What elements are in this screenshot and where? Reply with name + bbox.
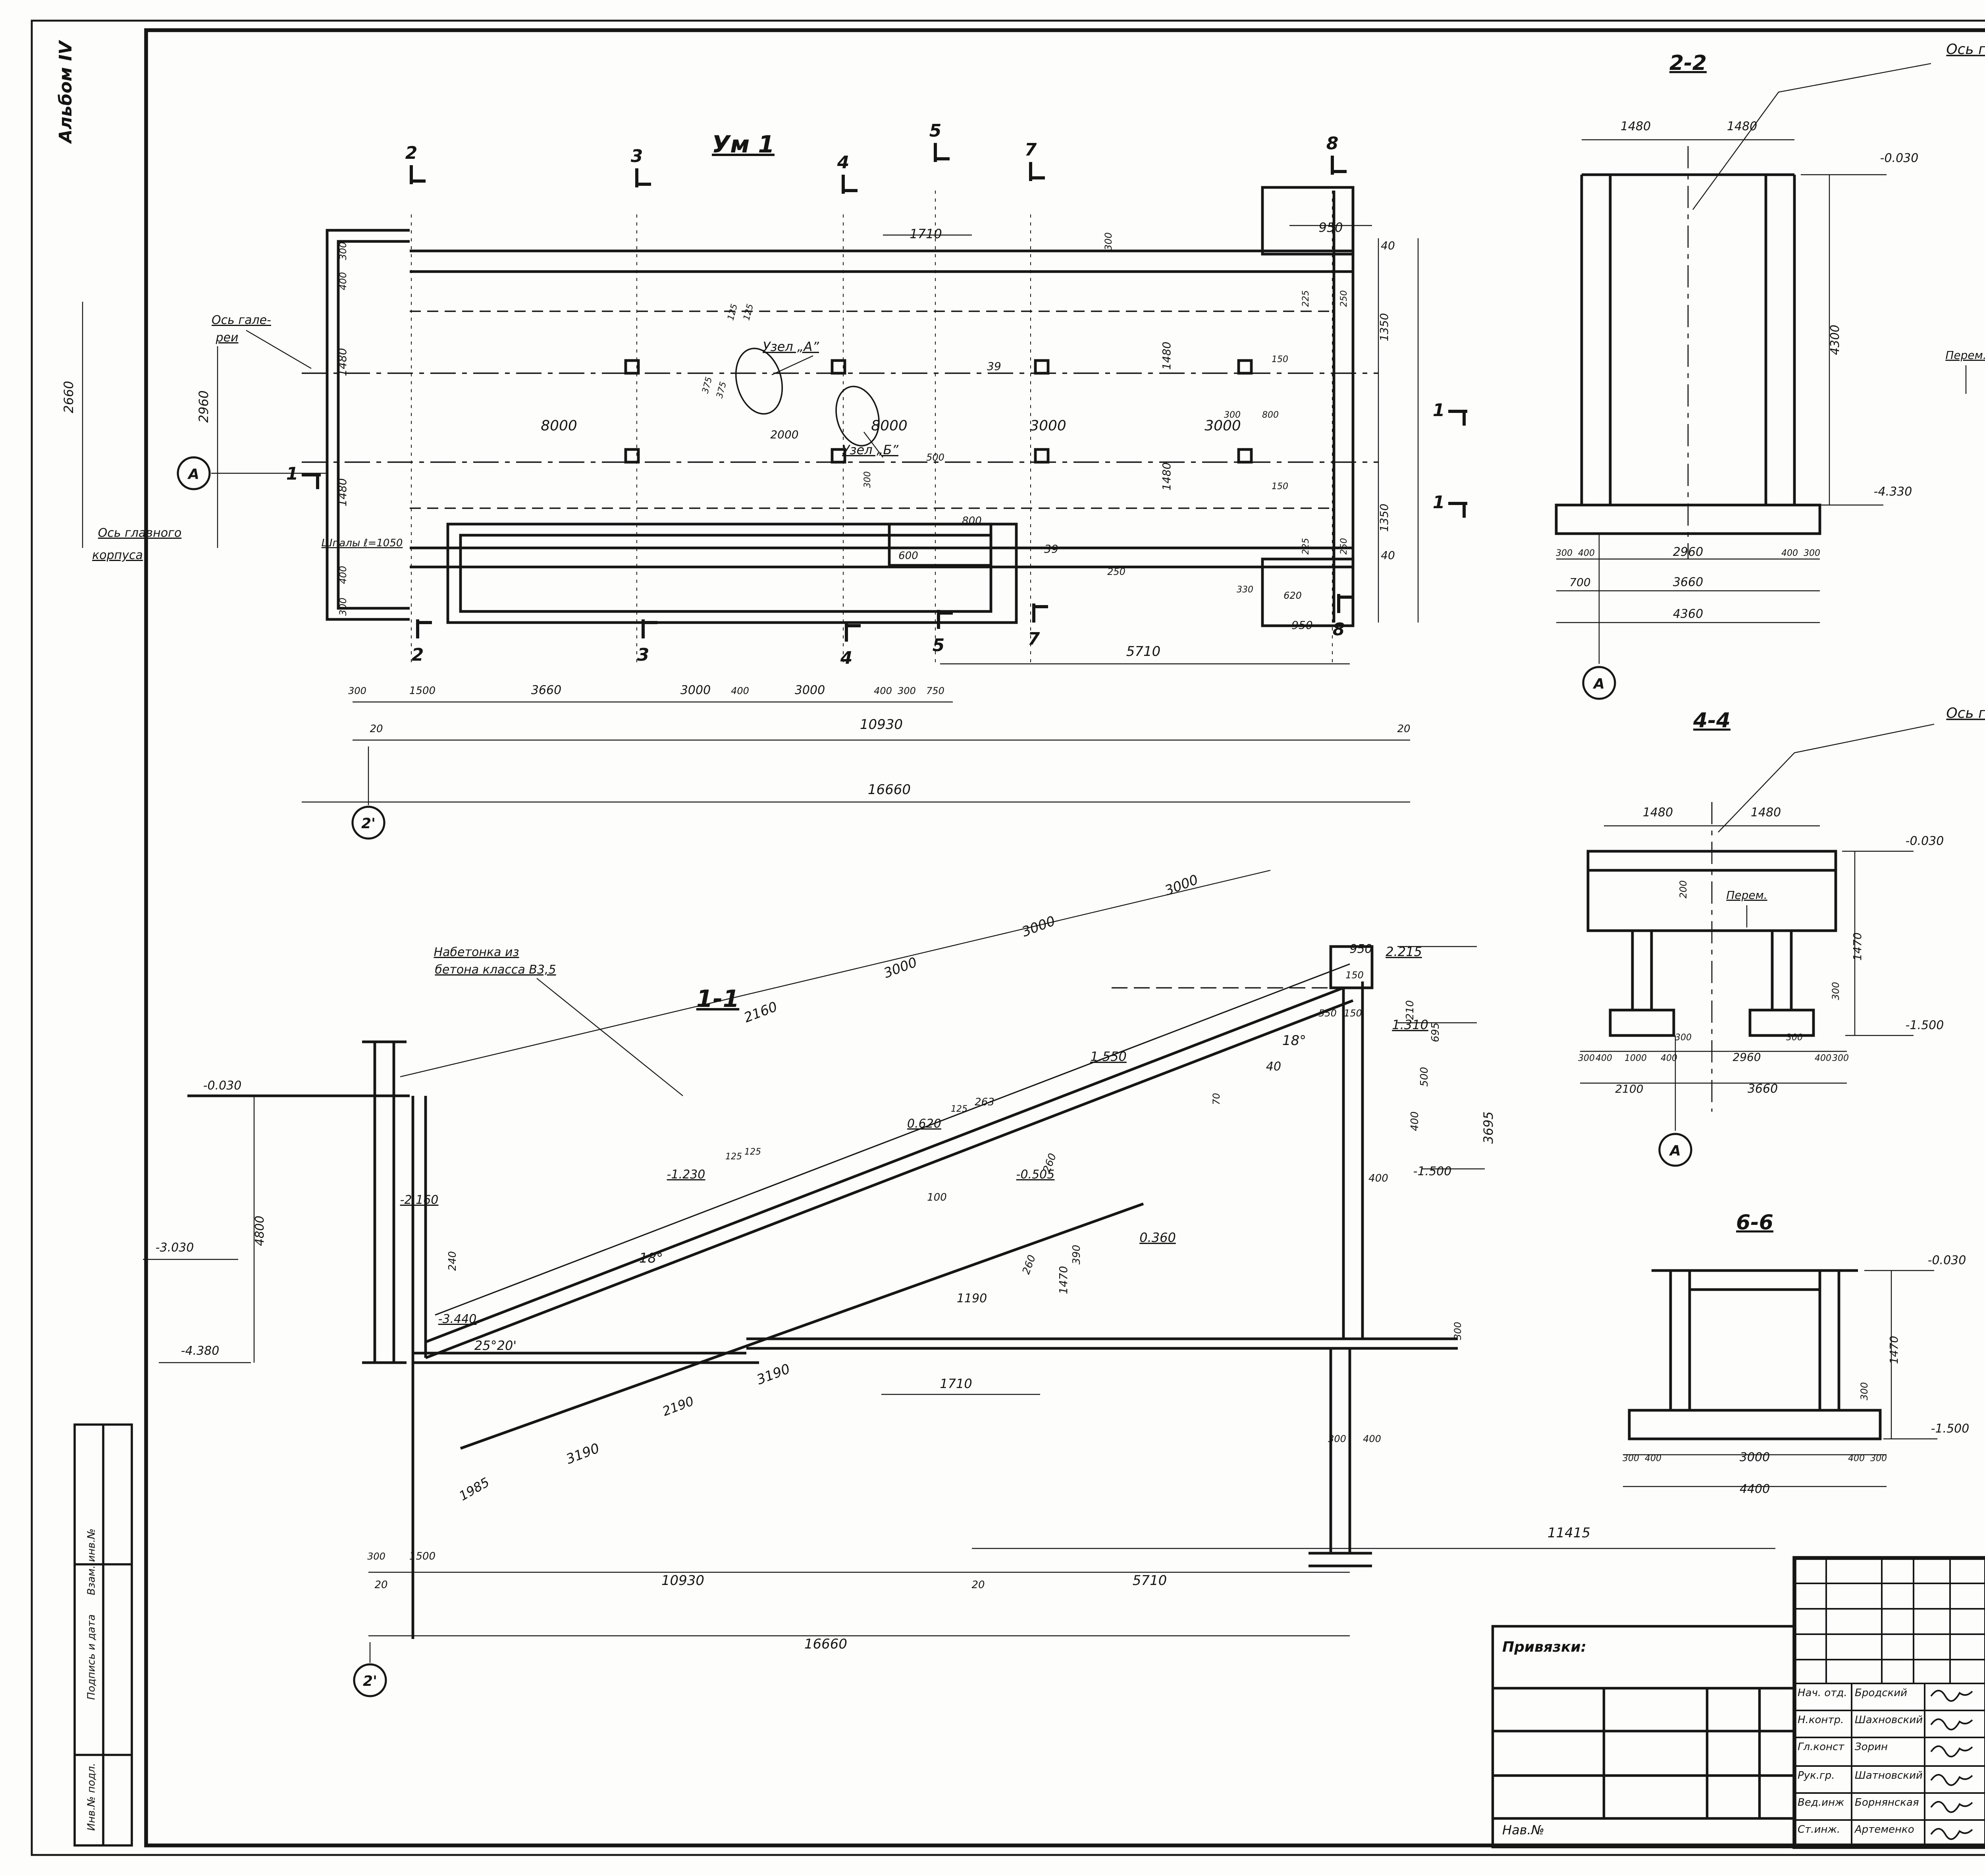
dim-label: 1.550 bbox=[1090, 1049, 1127, 1064]
role-name: Зорин bbox=[1855, 1741, 1888, 1754]
sheet: Ум 1171095026602960Ось гале-реиОсь главн… bbox=[0, 0, 1985, 1876]
dim-label: 16660 bbox=[804, 1636, 847, 1652]
dim-label: 300 bbox=[337, 598, 349, 616]
role-label: Рук.гр. bbox=[1798, 1768, 1835, 1781]
dim-label: 1190 bbox=[957, 1292, 987, 1305]
dim-label: 3660 bbox=[1748, 1082, 1778, 1096]
dim-label: корпуса bbox=[92, 548, 143, 562]
role-label: Вед.инж bbox=[1798, 1796, 1844, 1809]
dim-label: 330 bbox=[1237, 585, 1253, 595]
section-mark: 2 bbox=[412, 619, 432, 665]
dim-label: 400 bbox=[1815, 1053, 1831, 1063]
dim-label: 4360 bbox=[1673, 607, 1703, 621]
dim-label: 2660 bbox=[61, 381, 76, 413]
dim-label: Ось галереи bbox=[1946, 41, 1985, 58]
dim-label: 39 bbox=[987, 360, 1001, 373]
dim-label: Перем. bbox=[1945, 349, 1985, 362]
binding-box-bottom: Нав.№ bbox=[1502, 1825, 1629, 1838]
sheet-edge bbox=[32, 21, 1985, 1855]
section-mark-number: 8 bbox=[1333, 619, 1345, 640]
dim-label: 125 bbox=[742, 303, 755, 322]
section-mark: 5 bbox=[933, 610, 953, 656]
section-6-6-linework bbox=[1629, 1271, 1880, 1439]
dim-label: Узел „Б” bbox=[842, 442, 898, 457]
dim-label: -3.030 bbox=[156, 1241, 194, 1255]
dim-label: 1470 bbox=[1057, 1266, 1070, 1294]
view-title-plan: Ум 1 bbox=[712, 131, 775, 158]
signatures bbox=[1931, 1691, 1972, 1839]
view-title-1-1: 1-1 bbox=[696, 985, 739, 1013]
dim-label: 125 bbox=[744, 1147, 761, 1157]
section-mark-number: 7 bbox=[1025, 140, 1037, 160]
dim-label: Шпалы ℓ=1050 bbox=[322, 537, 403, 549]
dim-label: 3695 bbox=[1481, 1111, 1496, 1143]
role-name: Шахновский bbox=[1855, 1714, 1923, 1727]
dim-label: 950 bbox=[1291, 619, 1312, 632]
dim-label: 1350 bbox=[1378, 503, 1391, 532]
plan-linework bbox=[327, 187, 1353, 626]
dim-label: 1985 bbox=[457, 1475, 492, 1504]
dim-label: Перем. bbox=[1726, 889, 1767, 902]
dim-label: 3000 bbox=[1204, 418, 1241, 434]
dim-label: 3000 bbox=[1740, 1450, 1770, 1464]
dim-label: -4.380 bbox=[181, 1344, 220, 1358]
dim-label: 400 bbox=[1661, 1053, 1677, 1063]
dim-label: 5710 bbox=[1133, 1573, 1167, 1589]
dim-label: 300 bbox=[1804, 548, 1820, 558]
dim-label: 3660 bbox=[1673, 575, 1703, 589]
role-label: Ст.инж. bbox=[1798, 1823, 1840, 1836]
drawing-canvas: Ум 1171095026602960Ось гале-реиОсь главн… bbox=[0, 0, 1985, 1876]
section-mark-number: 1 bbox=[1433, 492, 1445, 513]
section-mark: 8 bbox=[1333, 594, 1353, 640]
role-label: Нач. отд. bbox=[1798, 1687, 1847, 1699]
dim-label: 3000 bbox=[1030, 418, 1066, 434]
dim-label: 400 bbox=[1645, 1454, 1661, 1463]
dim-label: 300 bbox=[1224, 410, 1241, 420]
dim-label: -1.500 bbox=[1413, 1165, 1452, 1178]
dim-label: 250 bbox=[1339, 290, 1349, 307]
dim-label: 5710 bbox=[1126, 644, 1161, 659]
dim-label: Ось главного bbox=[98, 526, 181, 540]
axis-circle-label: А bbox=[187, 466, 199, 482]
view-title-2-2: 2-2 bbox=[1669, 51, 1707, 75]
dim-label: 2960 bbox=[1673, 545, 1703, 559]
dim-label: 40 bbox=[1381, 239, 1395, 252]
section-mark: 1 bbox=[1433, 400, 1467, 426]
dim-label: 260 bbox=[1020, 1253, 1038, 1276]
dim-label: Набетонка из bbox=[434, 945, 519, 959]
view-title-4-4: 4-4 bbox=[1693, 709, 1731, 733]
dim-label: -4.330 bbox=[1874, 485, 1912, 499]
scanned-drawing-sheet: Ум 1171095026602960Ось гале-реиОсь главн… bbox=[0, 0, 1985, 1876]
section-mark-number: 4 bbox=[837, 152, 850, 173]
dim-label: 750 bbox=[926, 685, 944, 696]
dim-label: 2190 bbox=[660, 1393, 696, 1419]
section-mark-number: 3 bbox=[631, 146, 643, 166]
section-mark-number: 3 bbox=[637, 645, 649, 665]
section-mark: 2 bbox=[405, 143, 426, 184]
dim-label: реи bbox=[216, 331, 239, 345]
dim-label: 375 bbox=[715, 381, 728, 399]
dim-label: 1480 bbox=[1727, 120, 1757, 133]
dim-label: 300 bbox=[367, 1551, 385, 1562]
dim-label: 2.215 bbox=[1386, 944, 1422, 959]
dim-label: 4400 bbox=[1740, 1482, 1770, 1496]
dim-label: 125 bbox=[726, 303, 740, 322]
dim-label: 1500 bbox=[409, 1550, 436, 1562]
drawing-frame bbox=[146, 30, 1985, 1845]
dimension-lines bbox=[83, 64, 1985, 1663]
dim-label: 1480 bbox=[336, 348, 349, 376]
dim-label: 4800 bbox=[253, 1216, 267, 1246]
dim-label: 225 bbox=[1301, 538, 1311, 555]
section-mark-number: 2 bbox=[405, 143, 418, 163]
dim-label: 400 bbox=[1368, 1172, 1388, 1184]
dim-label: 3190 bbox=[754, 1361, 792, 1388]
dim-label: 200 bbox=[1678, 880, 1689, 898]
section-mark-number: 1 bbox=[1433, 400, 1445, 420]
margin-stamp-table bbox=[75, 1425, 132, 1845]
dim-label: 3000 bbox=[795, 683, 825, 697]
section-mark-number: 5 bbox=[929, 121, 942, 141]
dim-label: 0.360 bbox=[1139, 1230, 1176, 1245]
dim-label: 10930 bbox=[860, 717, 903, 733]
dim-label: 800 bbox=[962, 515, 982, 527]
axis-circle: 2' bbox=[354, 1664, 386, 1696]
dim-label: 300 bbox=[1786, 1033, 1803, 1043]
axis-circle-label: 2' bbox=[363, 1673, 377, 1689]
dim-label: 300 bbox=[863, 471, 873, 488]
dim-label: 300 bbox=[1675, 1033, 1692, 1043]
dim-label: 250 bbox=[1107, 566, 1125, 577]
dim-label: Ось гале- bbox=[212, 313, 271, 327]
role-label: Н.контр. bbox=[1798, 1714, 1844, 1727]
dim-label: -0.030 bbox=[1906, 834, 1944, 848]
dim-label: 3000 bbox=[1162, 872, 1200, 899]
dim-label: 263 bbox=[975, 1096, 994, 1108]
role-name: Борнянская bbox=[1855, 1796, 1919, 1809]
dim-label: 3000 bbox=[680, 683, 711, 697]
dim-label: 400 bbox=[1596, 1053, 1612, 1063]
dim-label: -1.500 bbox=[1931, 1422, 1970, 1436]
dim-label: 8000 bbox=[541, 418, 577, 434]
binding-box bbox=[1493, 1626, 1794, 1847]
plan-hidden-lines bbox=[302, 311, 1378, 508]
dim-label: 400 bbox=[874, 685, 892, 696]
dim-label: 18° bbox=[639, 1250, 663, 1266]
section-mark: 3 bbox=[637, 619, 657, 665]
dim-label: 20 bbox=[374, 1579, 387, 1591]
dim-label: 300 bbox=[1452, 1322, 1463, 1340]
axis-circle-label: А bbox=[1592, 676, 1605, 692]
dim-label: 2100 bbox=[1615, 1082, 1643, 1095]
role-name: Бродский bbox=[1855, 1687, 1907, 1699]
dim-label: 2000 bbox=[770, 428, 798, 441]
section-mark-number: 1 bbox=[286, 464, 299, 484]
dim-label: 620 bbox=[1284, 590, 1302, 601]
section-axes bbox=[1688, 146, 1985, 1112]
dim-label: -0.030 bbox=[1880, 151, 1919, 165]
dim-label: 400 bbox=[1781, 548, 1798, 558]
dim-label: 1480 bbox=[1751, 806, 1781, 819]
dim-label: 3660 bbox=[531, 683, 561, 697]
dim-label: 1.310 bbox=[1392, 1017, 1428, 1032]
section-mark: 7 bbox=[1028, 603, 1048, 649]
dim-label: 2960 bbox=[196, 390, 211, 422]
dim-label: 1480 bbox=[1621, 120, 1651, 133]
section-mark: 5 bbox=[929, 121, 950, 162]
axis-circle-label: А bbox=[1669, 1143, 1681, 1159]
section-mark: 1 bbox=[286, 464, 321, 489]
dim-label: 4300 bbox=[1828, 325, 1842, 355]
dim-label: 800 bbox=[1262, 410, 1279, 420]
margin-stamp-podpis: Подпись и дата bbox=[87, 1578, 97, 1737]
axis-circle-label: 2' bbox=[361, 816, 376, 832]
axis-circle: 2' bbox=[353, 807, 384, 839]
section-mark: 3 bbox=[631, 146, 651, 187]
dim-label: -1.230 bbox=[667, 1168, 705, 1182]
dim-label: 1480 bbox=[1643, 806, 1673, 819]
role-name: Шатновский bbox=[1855, 1768, 1923, 1781]
section-mark-number: 7 bbox=[1028, 629, 1040, 649]
dim-label: Узел „А” bbox=[763, 339, 819, 354]
margin-stamp-inv: Инв.№ подл. bbox=[87, 1718, 97, 1876]
view-title-6-6: 6-6 bbox=[1736, 1211, 1773, 1234]
dim-label: 375 bbox=[700, 376, 714, 395]
dim-label: 250 bbox=[1339, 538, 1349, 555]
dim-label: 150 bbox=[1272, 355, 1288, 364]
dim-label: 260 bbox=[1041, 1152, 1059, 1174]
dim-label: 300 bbox=[1556, 548, 1573, 558]
dim-label: 11415 bbox=[1548, 1525, 1590, 1541]
dim-label: 300 bbox=[1859, 1382, 1870, 1400]
dim-label: 1480 bbox=[1160, 462, 1173, 490]
dim-label: 400 bbox=[731, 685, 749, 696]
dim-label: 400 bbox=[1578, 548, 1595, 558]
album-side-label: Альбом IV bbox=[57, 0, 75, 143]
dim-label: 2160 bbox=[742, 999, 779, 1026]
dim-label: 1470 bbox=[1887, 1336, 1900, 1364]
dim-label: 400 bbox=[1363, 1433, 1381, 1444]
dim-label: Ось галереи bbox=[1946, 705, 1985, 721]
dim-label: 25°20' bbox=[474, 1338, 516, 1353]
dim-label: 3190 bbox=[564, 1440, 601, 1467]
dim-label: 225 bbox=[1301, 290, 1311, 307]
dim-label: 1000 bbox=[1625, 1053, 1647, 1063]
dim-label: 400 bbox=[337, 272, 349, 290]
dim-label: 20 bbox=[971, 1579, 985, 1591]
dim-label: 1480 bbox=[1160, 341, 1173, 370]
dim-label: 300 bbox=[898, 685, 916, 696]
dim-label: 2960 bbox=[1733, 1051, 1761, 1064]
dim-label: 40 bbox=[1266, 1060, 1281, 1074]
dim-label: 400 bbox=[337, 566, 349, 584]
dim-label: 400 bbox=[1848, 1454, 1865, 1463]
dim-label: 300 bbox=[1623, 1454, 1639, 1463]
dim-label: 150 bbox=[1272, 482, 1288, 492]
dim-label: 500 bbox=[1418, 1067, 1430, 1087]
dim-label: 1710 bbox=[910, 226, 942, 241]
dim-label: -3.440 bbox=[438, 1312, 477, 1326]
dim-label: 300 bbox=[1832, 1053, 1849, 1063]
dim-label: 600 bbox=[898, 550, 918, 562]
dim-label: 950 bbox=[1318, 220, 1343, 235]
dim-label: 300 bbox=[1870, 1454, 1887, 1463]
dim-label: 240 bbox=[447, 1251, 459, 1271]
dim-label: 695 bbox=[1430, 1022, 1442, 1042]
dim-label: 1480 bbox=[336, 478, 349, 506]
dim-label: -0.030 bbox=[1928, 1253, 1966, 1267]
dim-label: 300 bbox=[1328, 1433, 1346, 1444]
section-mark: 4 bbox=[837, 152, 858, 194]
binding-box-title: Привязки: bbox=[1502, 1642, 1693, 1657]
dim-label: 125 bbox=[725, 1152, 742, 1162]
dim-label: 100 bbox=[927, 1192, 947, 1203]
dim-label: 1470 bbox=[1851, 932, 1864, 960]
dim-label: 125 bbox=[951, 1104, 967, 1114]
section-mark: 1 bbox=[1433, 492, 1467, 518]
dim-label: -1.500 bbox=[1906, 1018, 1944, 1032]
dim-label: бетона класса В3,5 bbox=[435, 963, 556, 977]
dim-label: 300 bbox=[348, 685, 366, 696]
section-mark: 8 bbox=[1326, 133, 1347, 175]
dim-label: 20 bbox=[1397, 723, 1410, 735]
section-1-1-thin bbox=[435, 964, 1350, 1315]
section-mark-number: 5 bbox=[933, 635, 945, 656]
axis-circle: А bbox=[1659, 1134, 1691, 1166]
axis-circle: А bbox=[1583, 667, 1615, 699]
dim-label: 390 bbox=[1071, 1245, 1083, 1265]
dim-label: 950 bbox=[1349, 942, 1372, 956]
dim-label: 150 bbox=[1345, 970, 1364, 981]
dim-label: 16660 bbox=[868, 782, 911, 798]
dim-label: 300 bbox=[1103, 232, 1114, 251]
section-1-1-linework bbox=[187, 947, 1458, 1639]
dim-label: 70 bbox=[1211, 1093, 1222, 1105]
dim-label: 40 bbox=[1381, 549, 1395, 562]
dim-label: 20 bbox=[370, 723, 383, 735]
axis-circle: А bbox=[178, 457, 210, 489]
dim-label: 0.620 bbox=[907, 1117, 941, 1131]
dim-label: 8000 bbox=[871, 418, 908, 434]
role-label: Гл.конст bbox=[1798, 1741, 1844, 1754]
dim-label: -2.160 bbox=[400, 1193, 439, 1207]
dim-label: 10930 bbox=[661, 1573, 704, 1589]
dim-label: 550 bbox=[1318, 1008, 1337, 1019]
role-name: Артеменко bbox=[1855, 1823, 1914, 1836]
dim-label: 300 bbox=[1578, 1053, 1595, 1063]
section-mark-number: 8 bbox=[1326, 133, 1339, 154]
dim-label: 500 bbox=[926, 452, 944, 463]
dim-label: 1500 bbox=[409, 685, 436, 697]
dim-label: 18° bbox=[1282, 1033, 1306, 1049]
dim-label: 3000 bbox=[1019, 913, 1057, 940]
dim-label: 300 bbox=[1830, 982, 1841, 1000]
section-mark-number: 2 bbox=[412, 645, 424, 665]
dim-label: 1710 bbox=[940, 1376, 972, 1391]
dim-label: 700 bbox=[1569, 576, 1590, 589]
dim-label: 150 bbox=[1344, 1008, 1362, 1019]
dim-label: 39 bbox=[1044, 542, 1058, 555]
section-mark: 7 bbox=[1025, 140, 1045, 181]
dim-label: -0.030 bbox=[203, 1079, 242, 1093]
dim-label: 400 bbox=[1409, 1111, 1421, 1131]
dim-label: 300 bbox=[337, 242, 349, 260]
dim-label: 1350 bbox=[1378, 313, 1391, 341]
section-mark-number: 4 bbox=[840, 648, 853, 668]
